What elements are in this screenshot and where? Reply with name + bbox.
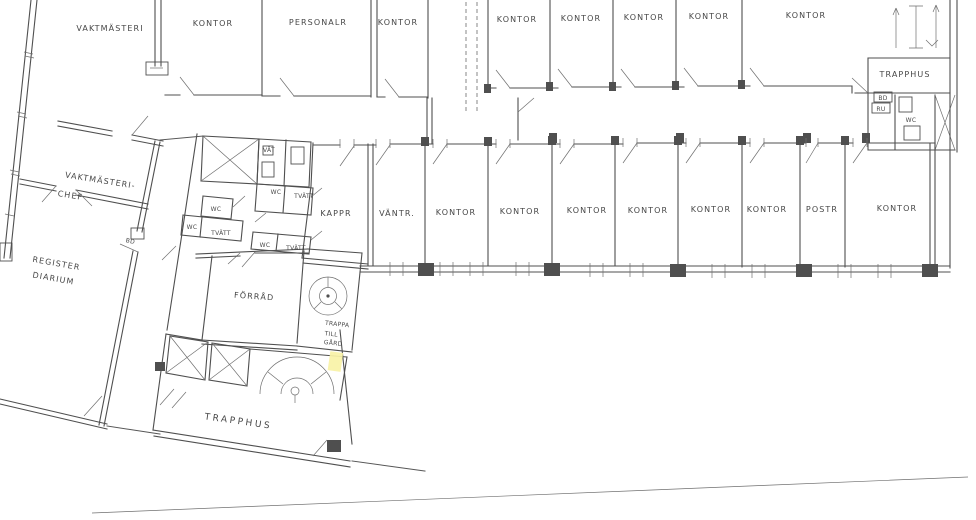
room-label-kontor-top-3: KONTOR bbox=[497, 15, 537, 24]
room-label-kontor-mid-2: KONTOR bbox=[500, 207, 540, 216]
room-label-kontor-mid-1: KONTOR bbox=[436, 208, 476, 217]
room-label-vaktmasteri: VAKTMÄSTERI bbox=[76, 23, 143, 33]
room-label-tvatt-c: TVÄTT bbox=[285, 245, 306, 252]
room-label-wc-b: WC bbox=[211, 206, 222, 213]
room-label-kontor-top-2: KONTOR bbox=[378, 18, 418, 27]
room-label-kontor-mid-6: KONTOR bbox=[747, 205, 787, 214]
room-label-vat: VÄT bbox=[263, 147, 275, 154]
room-label-kontor-top-5: KONTOR bbox=[624, 13, 664, 22]
room-label-kontor-mid-7: KONTOR bbox=[877, 204, 917, 213]
room-label-vantr: VÄNTR. bbox=[379, 208, 415, 218]
floor-plan-page: VAKTMÄSTERI VAKTMÄSTERI- CHEF BD REGISTE… bbox=[0, 0, 976, 520]
room-label-tvatt-a: TVÄTT bbox=[293, 193, 314, 200]
room-label-postr: POSTR bbox=[806, 205, 838, 214]
room-label-wc-a: WC bbox=[271, 189, 282, 196]
floor-plan-canvas: VAKTMÄSTERI VAKTMÄSTERI- CHEF BD REGISTE… bbox=[0, 0, 976, 520]
label-ru-top: RU bbox=[876, 106, 885, 113]
room-label-kappr: KAPPR bbox=[320, 209, 351, 218]
room-label-wc-top: WC bbox=[906, 117, 917, 124]
room-label-wc-c: WC bbox=[187, 224, 198, 231]
highlight-marker bbox=[328, 351, 344, 372]
room-label-kontor-top-1: KONTOR bbox=[193, 19, 233, 28]
label-bd-top: BD bbox=[878, 95, 887, 102]
room-label-kontor-top-7: KONTOR bbox=[786, 11, 826, 20]
room-label-kontor-mid-4: KONTOR bbox=[628, 206, 668, 215]
room-label-personalr: PERSONALR bbox=[289, 18, 347, 27]
room-label-kontor-top-4: KONTOR bbox=[561, 14, 601, 23]
top-row-center-labels: KONTOR PERSONALR KONTOR bbox=[193, 18, 418, 28]
room-label-kontor-top-6: KONTOR bbox=[689, 12, 729, 21]
room-label-trapphus-top: TRAPPHUS bbox=[879, 70, 931, 79]
room-label-tvatt-b: TVÄTT bbox=[210, 230, 231, 237]
room-label-kontor-mid-3: KONTOR bbox=[567, 206, 607, 215]
room-label-wc-d: WC bbox=[260, 242, 271, 249]
room-label-kontor-mid-5: KONTOR bbox=[691, 205, 731, 214]
